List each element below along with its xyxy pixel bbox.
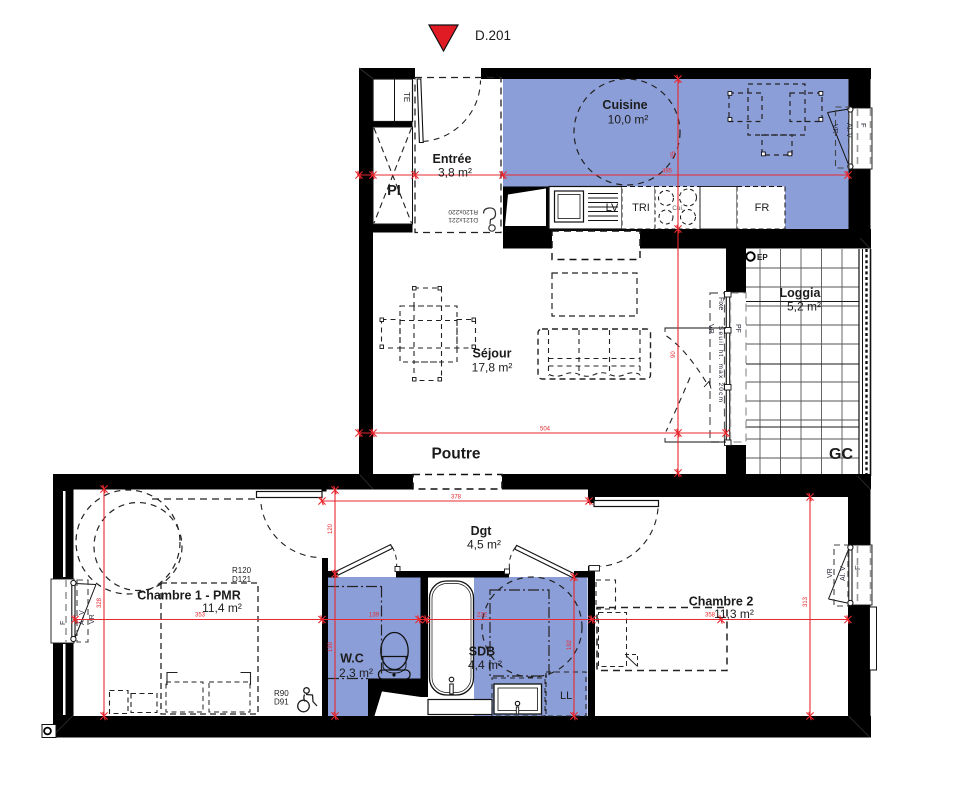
svg-text:W.C: W.C: [340, 652, 364, 666]
svg-text:VR: VR: [831, 124, 838, 134]
svg-text:Cuisine: Cuisine: [602, 98, 647, 112]
svg-text:25: 25: [671, 151, 677, 158]
svg-text:Dgt: Dgt: [471, 524, 493, 538]
svg-text:EP: EP: [757, 253, 768, 262]
svg-text:F: F: [853, 565, 862, 570]
svg-text:10,0 m²: 10,0 m²: [608, 113, 649, 127]
svg-text:D121x221: D121x221: [448, 216, 478, 223]
svg-text:SDB: SDB: [469, 645, 495, 659]
svg-text:TRI: TRI: [632, 202, 650, 214]
svg-text:LL: LL: [560, 690, 572, 702]
svg-text:232: 232: [477, 613, 488, 619]
svg-text:192: 192: [567, 639, 573, 650]
svg-text:D.201: D.201: [475, 28, 511, 43]
svg-text:11,3 m²: 11,3 m²: [714, 607, 754, 621]
svg-text:R120: R120: [232, 566, 252, 575]
svg-text:FR: FR: [755, 202, 770, 214]
svg-text:Loggia: Loggia: [780, 286, 822, 300]
svg-text:Entrée: Entrée: [433, 152, 472, 166]
svg-text:495: 495: [662, 169, 673, 175]
svg-text:D91: D91: [274, 698, 289, 707]
svg-text:313: 313: [803, 596, 809, 607]
svg-text:4,5 m²: 4,5 m²: [467, 538, 501, 552]
svg-text:Poutre: Poutre: [431, 446, 480, 463]
svg-text:F: F: [859, 123, 868, 128]
svg-text:VR: VR: [707, 324, 714, 334]
svg-text:120: 120: [328, 523, 334, 534]
svg-text:504: 504: [540, 427, 551, 433]
svg-text:R120x220: R120x220: [448, 208, 478, 215]
svg-text:17,8 m²: 17,8 m²: [472, 361, 513, 375]
svg-text:PI: PI: [387, 183, 401, 199]
svg-text:LV: LV: [606, 202, 619, 214]
svg-text:Fixe: Fixe: [717, 297, 724, 310]
svg-text:90: 90: [671, 351, 677, 358]
svg-text:F: F: [60, 621, 67, 625]
svg-text:Al. V: Al. V: [840, 566, 847, 581]
svg-text:2,3 m²: 2,3 m²: [339, 666, 373, 680]
svg-text:139: 139: [369, 613, 380, 619]
svg-text:VR: VR: [827, 568, 834, 578]
svg-text:328: 328: [97, 597, 103, 608]
svg-text:Séjour: Séjour: [473, 347, 512, 361]
svg-text:Al. V: Al. V: [845, 123, 852, 138]
svg-text:5,2 m²: 5,2 m²: [787, 300, 821, 314]
svg-text:3,8 m²: 3,8 m²: [438, 166, 472, 180]
svg-text:199: 199: [328, 641, 334, 652]
svg-text:PF: PF: [734, 324, 741, 333]
svg-text:4,4 m²: 4,4 m²: [468, 658, 502, 672]
svg-text:Al. V: Al. V: [79, 610, 86, 625]
svg-text:378: 378: [451, 495, 462, 501]
svg-text:11,4 m²: 11,4 m²: [202, 601, 242, 615]
svg-text:D121: D121: [232, 575, 252, 584]
svg-text:TE: TE: [402, 92, 411, 102]
svg-text:GC: GC: [829, 446, 853, 463]
svg-text:Seuil ht. max 20cm: Seuil ht. max 20cm: [717, 326, 724, 402]
